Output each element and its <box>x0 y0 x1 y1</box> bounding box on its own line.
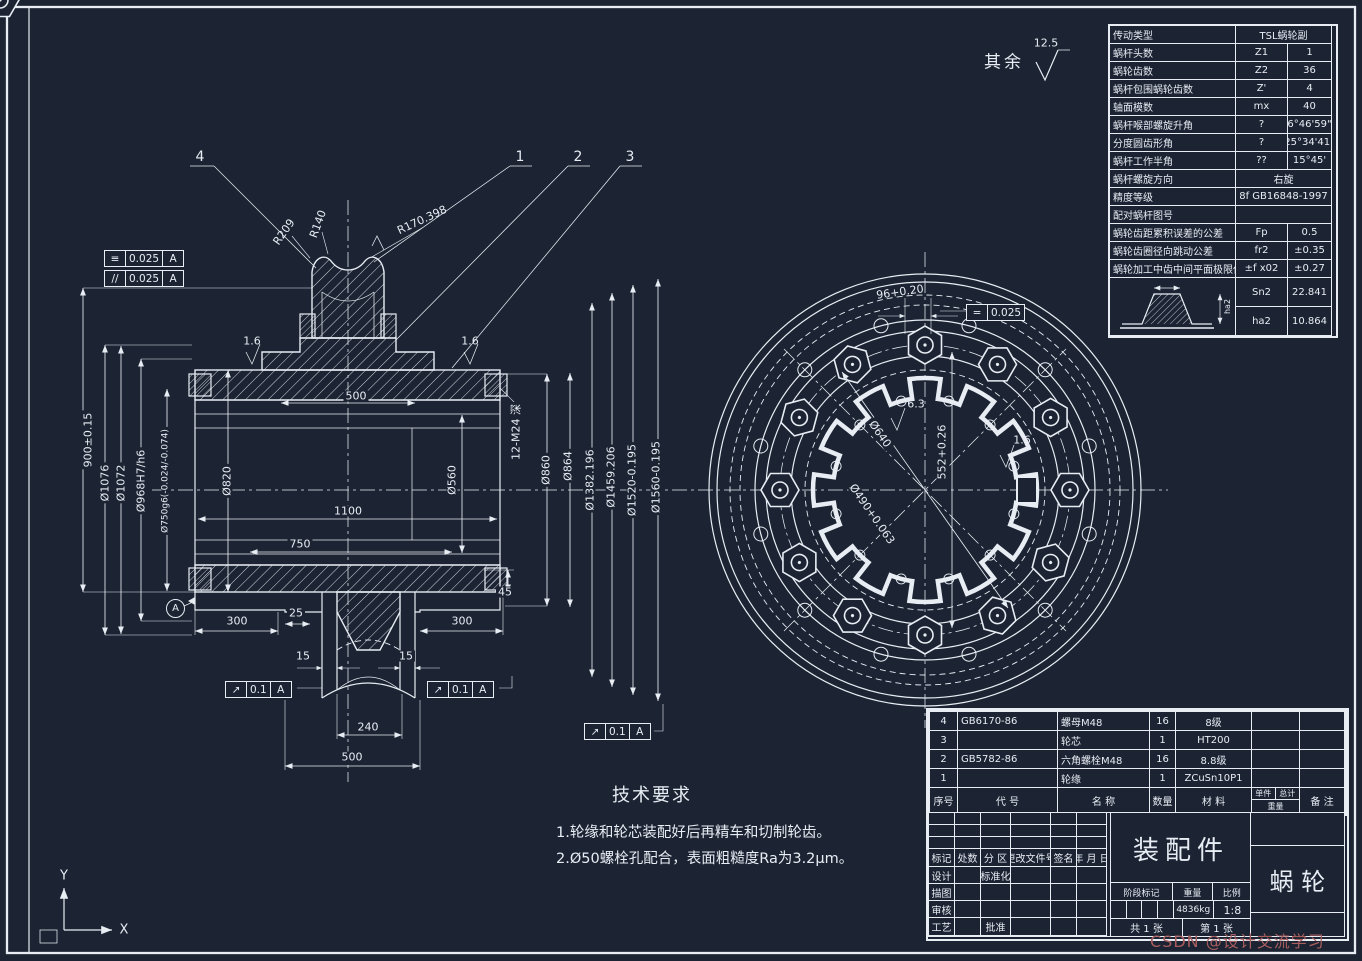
dim-1100: 1100 <box>332 506 364 517</box>
dim-15-right: 15 <box>397 651 415 662</box>
dim-300-left: 300 <box>225 616 250 627</box>
label-craft: 工艺 <box>929 918 955 936</box>
fcf-symmetry: ≡ 0.025 A <box>104 250 184 267</box>
drawing-sheet: .ln{stroke:#e8edf4;fill:none;stroke-widt… <box>0 0 1362 961</box>
datum-a: A <box>166 599 185 618</box>
bom-header-weight: 单件 总计 重量 <box>1252 788 1300 814</box>
bom-header-no: 序号 <box>930 788 958 814</box>
runout-icon: ↗ <box>584 723 606 740</box>
label-mark: 标记 <box>929 849 955 867</box>
bom-header-code: 代 号 <box>958 788 1058 814</box>
finish-16-left: 1.6 <box>243 336 261 347</box>
dim-500-bottom: 500 <box>340 752 365 763</box>
weight-value: 4836kg <box>1174 901 1214 919</box>
bom-row: 2 <box>930 750 958 769</box>
x-axis-label: X <box>120 924 129 937</box>
dim-1382: Ø1382.196 <box>585 447 596 512</box>
tech-req-title: 技术要求 <box>612 787 692 805</box>
bom-row: 4 <box>930 712 958 731</box>
bom-row: 3 <box>930 731 958 750</box>
dim-750g6: Ø750g6(-0.024/-0.074) <box>162 427 171 535</box>
dim-1459: Ø1459.206 <box>606 444 617 509</box>
finish-63: 6.3 <box>907 399 925 410</box>
tech-req-line-1: 1.轮缘和轮芯装配好后再精车和切制轮齿。 <box>556 826 831 841</box>
side-view-geometry <box>0 0 1141 728</box>
dim-864: Ø864 <box>563 449 574 483</box>
y-axis-label: Y <box>60 870 68 883</box>
dim-968: Ø968H7/h6 <box>136 448 147 515</box>
balloon-1: 1 <box>516 150 525 164</box>
dim-thread: 12-M24 深 <box>511 402 522 462</box>
label-doc: 更改文件号 <box>1011 849 1051 867</box>
revision-grid: 标记 处数 分 区 更改文件号 签名 年 月 日 设计 标准化 描图 审核 工艺… <box>928 812 1112 937</box>
bom-header-note: 备 注 <box>1300 788 1345 814</box>
runout-icon: ↗ <box>225 681 247 698</box>
dim-552: 552+0.26 <box>937 423 948 482</box>
balloon-4: 4 <box>196 150 205 164</box>
dim-1076: Ø1076 <box>100 463 111 504</box>
label-zone: 分 区 <box>981 849 1011 867</box>
tech-req-line-2: 2.Ø50螺栓孔配合，表面粗糙度Ra为3.2μm。 <box>556 852 853 867</box>
dim-560: Ø560 <box>447 463 458 497</box>
label-sign: 签名 <box>1051 849 1077 867</box>
fcf-runout-right: ↗ 0.1 A <box>427 681 494 698</box>
dim-1072: Ø1072 <box>116 463 127 504</box>
dim-860: Ø860 <box>541 453 552 487</box>
symmetry-icon: ≡ <box>104 250 126 267</box>
finish-16-right: 1.6 <box>461 336 479 347</box>
fcf-runout-left: ↗ 0.1 A <box>225 681 292 698</box>
label-stage: 阶段标记 <box>1111 883 1173 901</box>
label-std: 标准化 <box>981 867 1011 884</box>
fcf-symmetry-side: = 0.025 <box>966 304 1025 321</box>
label-date: 年 月 日 <box>1077 849 1107 867</box>
tooth-profile-diagram: ha2 <box>1110 278 1236 336</box>
label-design: 设计 <box>929 867 955 884</box>
dim-15-left: 15 <box>294 651 312 662</box>
bom-row: 1 <box>930 769 958 788</box>
runout-icon: ↗ <box>427 681 449 698</box>
parameter-table: 传动类型TSL蜗轮副 蜗杆头数Z11 蜗轮齿数Z236 蜗杆包围蜗轮齿数Z'4 … <box>1108 24 1338 338</box>
dim-750: 750 <box>288 539 313 550</box>
dim-500: 500 <box>344 391 369 402</box>
label-approve: 批准 <box>981 918 1011 936</box>
label-count: 处数 <box>955 849 981 867</box>
balloon-2: 2 <box>574 150 583 164</box>
bom-table: 4GB6170-86螺母M48168级 3轮芯1HT200 2GB5782-86… <box>928 710 1347 816</box>
balloon-3: 3 <box>626 150 635 164</box>
dim-820: Ø820 <box>222 464 233 498</box>
fcf-runout-bottom: ↗ 0.1 A <box>584 723 651 740</box>
bom-header-mat: 材 料 <box>1176 788 1252 814</box>
fcf-parallelism: // 0.025 A <box>104 270 184 287</box>
dim-25: 25 <box>287 608 305 619</box>
dim-1560: Ø1560-0.195 <box>651 439 662 515</box>
assembly-title: 装配件 <box>1110 812 1252 884</box>
symmetry-icon: = <box>966 304 988 321</box>
dim-1520: Ø1520-0.195 <box>627 442 638 518</box>
bom-header-qty: 数量 <box>1150 788 1176 814</box>
label-draw: 描图 <box>929 884 955 901</box>
stage-header-row: 阶段标记 重量 比例 <box>1110 882 1252 902</box>
dim-300-right: 300 <box>450 616 475 627</box>
part-title: 蜗 轮 <box>1250 845 1345 914</box>
ucs-icon <box>64 888 112 930</box>
roughness-symbol <box>1036 50 1070 80</box>
dim-240: 240 <box>356 722 381 733</box>
watermark: CSDN @设计交流学习 <box>1150 928 1325 952</box>
dim-45: 45 <box>496 587 514 598</box>
roughness-note-value: 12.5 <box>1034 38 1059 49</box>
label-check: 审核 <box>929 901 955 918</box>
bom-header-name: 名 称 <box>1058 788 1150 814</box>
stage-value-row: 4836kg 1:8 <box>1110 900 1252 920</box>
label-weight: 重量 <box>1173 883 1212 901</box>
finish-16-keyway: 1.6 <box>1013 435 1031 446</box>
label-scale: 比例 <box>1213 883 1251 901</box>
parallelism-icon: // <box>104 270 126 287</box>
dim-900: 900±0.15 <box>83 411 94 470</box>
roughness-note-label: 其余 <box>984 55 1024 72</box>
scale-value: 1:8 <box>1214 901 1251 919</box>
